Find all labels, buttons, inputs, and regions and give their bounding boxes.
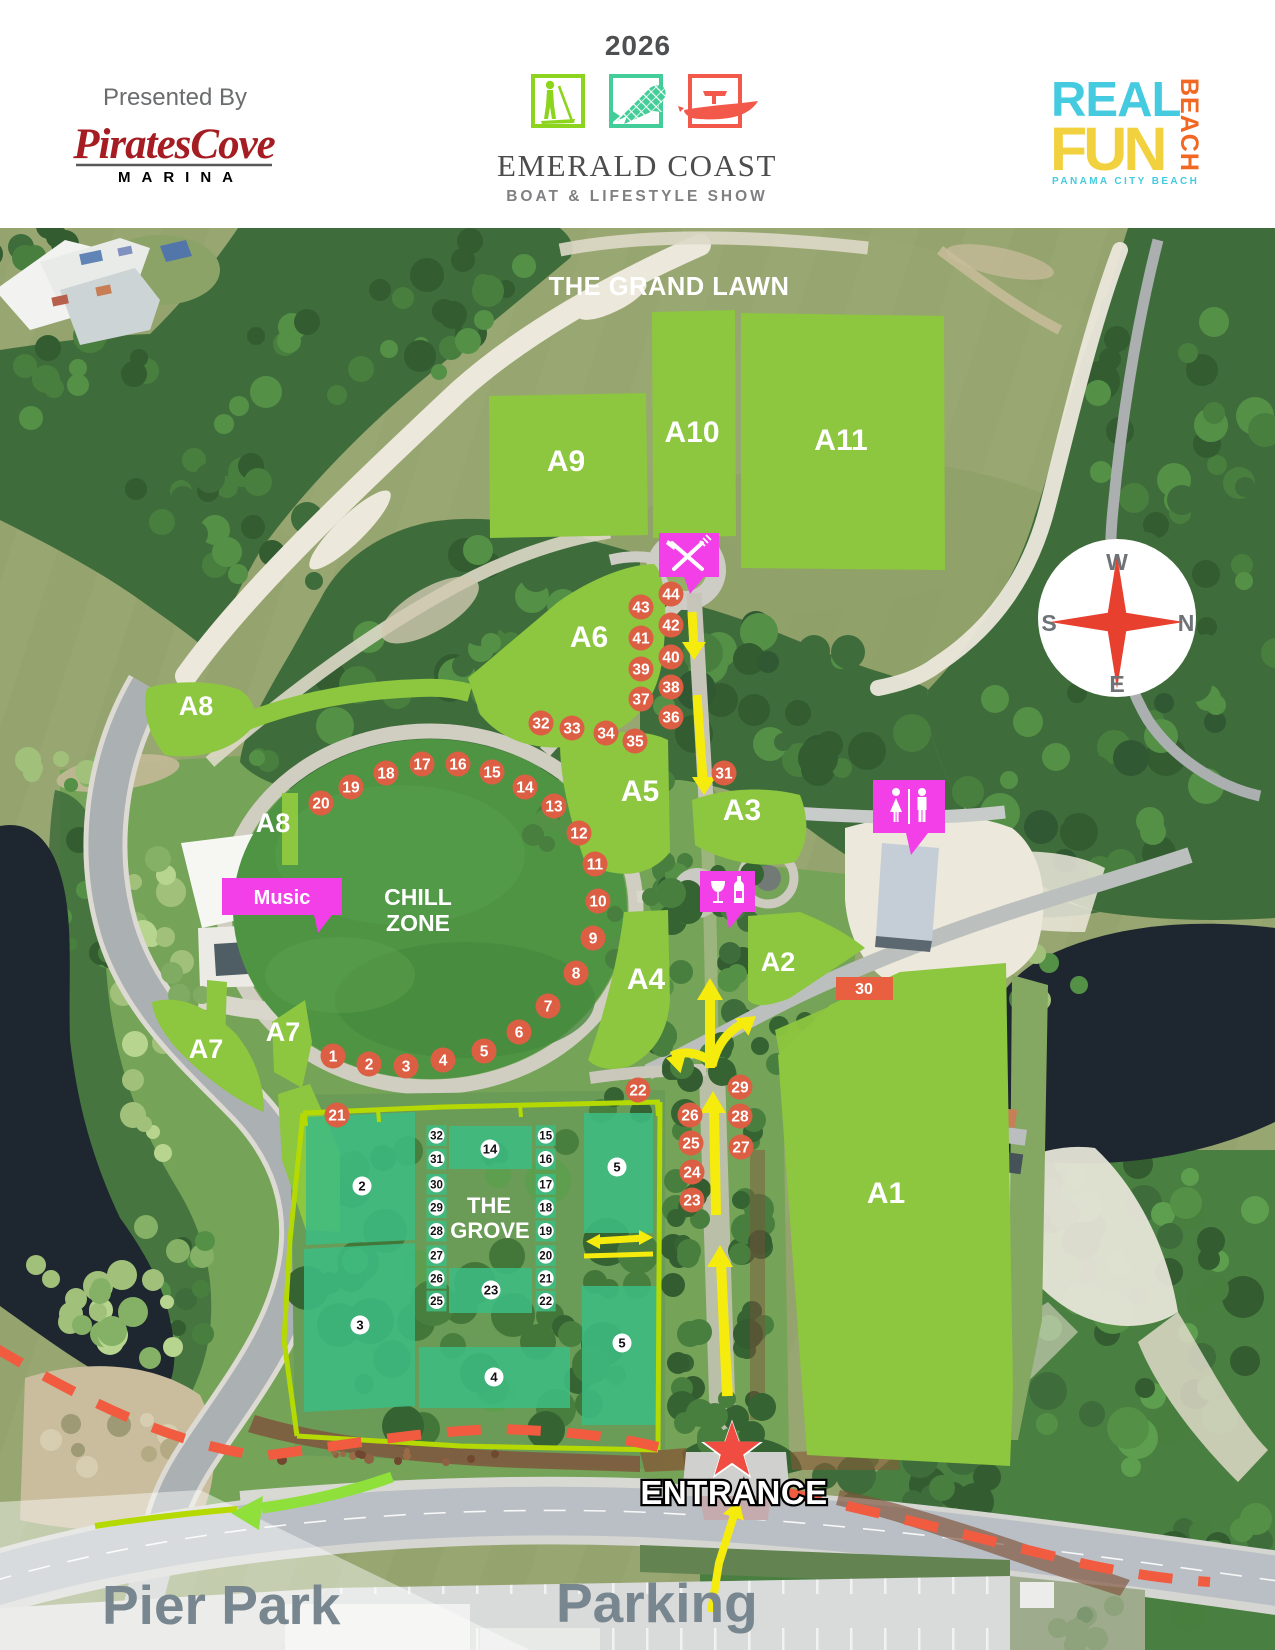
svg-text:26: 26 xyxy=(681,1108,699,1125)
svg-text:11: 11 xyxy=(587,857,604,874)
svg-text:14: 14 xyxy=(483,1142,498,1157)
svg-text:A2: A2 xyxy=(761,947,796,977)
svg-text:PANAMA CITY BEACH: PANAMA CITY BEACH xyxy=(1052,176,1199,187)
svg-text:20: 20 xyxy=(539,1251,552,1263)
svg-text:25: 25 xyxy=(430,1296,443,1308)
svg-text:19: 19 xyxy=(539,1226,552,1238)
svg-text:1: 1 xyxy=(329,1049,338,1066)
svg-text:PiratesCove: PiratesCove xyxy=(72,121,275,168)
svg-text:A9: A9 xyxy=(547,445,585,478)
svg-text:20: 20 xyxy=(312,796,329,813)
svg-text:THE GRAND LAWN: THE GRAND LAWN xyxy=(549,273,790,301)
svg-text:A1: A1 xyxy=(867,1177,905,1210)
svg-text:22: 22 xyxy=(629,1083,646,1100)
svg-text:A8: A8 xyxy=(179,691,214,721)
svg-text:BEACH: BEACH xyxy=(1175,78,1203,172)
svg-text:14: 14 xyxy=(516,780,534,797)
svg-text:FUN: FUN xyxy=(1050,115,1163,183)
svg-text:A11: A11 xyxy=(814,424,867,457)
svg-text:Music: Music xyxy=(254,887,311,909)
svg-text:5: 5 xyxy=(613,1160,620,1175)
svg-text:10: 10 xyxy=(589,894,606,911)
svg-text:4: 4 xyxy=(439,1053,448,1070)
svg-text:34: 34 xyxy=(597,726,615,743)
svg-text:8: 8 xyxy=(572,966,581,983)
svg-text:A8: A8 xyxy=(256,808,291,838)
svg-text:GROVE: GROVE xyxy=(450,1218,529,1243)
svg-text:W: W xyxy=(1106,549,1128,575)
svg-text:32: 32 xyxy=(430,1131,443,1143)
svg-text:18: 18 xyxy=(539,1203,552,1215)
svg-text:29: 29 xyxy=(731,1080,749,1097)
svg-text:S: S xyxy=(1041,610,1056,636)
svg-text:15: 15 xyxy=(483,765,501,782)
svg-text:A10: A10 xyxy=(664,416,719,449)
svg-text:23: 23 xyxy=(484,1283,498,1298)
svg-text:41: 41 xyxy=(632,631,650,648)
svg-text:38: 38 xyxy=(662,680,680,697)
svg-text:N: N xyxy=(1178,610,1195,636)
svg-text:43: 43 xyxy=(632,600,650,617)
svg-text:31: 31 xyxy=(430,1154,443,1166)
svg-text:24: 24 xyxy=(683,1165,701,1182)
svg-text:EMERALD COAST: EMERALD COAST xyxy=(497,148,777,183)
svg-text:40: 40 xyxy=(662,650,679,667)
svg-text:12: 12 xyxy=(570,826,587,843)
svg-text:30: 30 xyxy=(855,981,873,998)
svg-text:6: 6 xyxy=(515,1025,524,1042)
svg-text:A7: A7 xyxy=(189,1034,224,1064)
svg-text:A3: A3 xyxy=(723,794,761,827)
svg-text:21: 21 xyxy=(328,1108,346,1125)
svg-text:MARINA: MARINA xyxy=(118,169,244,186)
svg-text:A4: A4 xyxy=(627,963,666,996)
svg-text:30: 30 xyxy=(430,1179,443,1191)
svg-text:29: 29 xyxy=(430,1203,443,1215)
svg-text:ENTRANCE: ENTRANCE xyxy=(640,1474,827,1511)
svg-text:26: 26 xyxy=(430,1273,443,1285)
svg-text:2026: 2026 xyxy=(605,30,671,61)
svg-text:Pier Park: Pier Park xyxy=(102,1574,341,1636)
svg-text:35: 35 xyxy=(626,734,644,751)
svg-text:25: 25 xyxy=(682,1136,700,1153)
svg-text:A5: A5 xyxy=(621,775,659,808)
svg-text:2: 2 xyxy=(365,1057,374,1074)
svg-text:27: 27 xyxy=(732,1140,749,1157)
svg-text:4: 4 xyxy=(490,1370,498,1385)
svg-text:Presented By: Presented By xyxy=(103,84,247,111)
svg-text:5: 5 xyxy=(618,1336,625,1351)
svg-text:15: 15 xyxy=(539,1131,552,1143)
svg-text:16: 16 xyxy=(539,1154,552,1166)
svg-text:33: 33 xyxy=(563,721,581,738)
svg-text:28: 28 xyxy=(430,1226,443,1238)
svg-text:27: 27 xyxy=(430,1251,443,1263)
svg-text:3: 3 xyxy=(402,1059,411,1076)
svg-text:3: 3 xyxy=(356,1318,363,1333)
svg-text:28: 28 xyxy=(731,1109,749,1126)
svg-text:E: E xyxy=(1109,671,1124,697)
svg-text:39: 39 xyxy=(632,662,650,679)
svg-text:ZONE: ZONE xyxy=(386,910,450,936)
svg-text:31: 31 xyxy=(715,766,733,783)
svg-text:7: 7 xyxy=(544,999,553,1016)
svg-text:13: 13 xyxy=(545,799,563,816)
svg-text:37: 37 xyxy=(632,692,649,709)
svg-text:18: 18 xyxy=(377,766,395,783)
svg-text:42: 42 xyxy=(662,618,679,635)
svg-text:21: 21 xyxy=(539,1273,552,1285)
svg-text:A6: A6 xyxy=(570,621,608,654)
svg-text:2: 2 xyxy=(358,1179,365,1194)
svg-text:36: 36 xyxy=(662,710,680,727)
svg-text:17: 17 xyxy=(413,757,430,774)
svg-text:19: 19 xyxy=(342,780,360,797)
svg-text:A7: A7 xyxy=(266,1017,301,1047)
svg-text:17: 17 xyxy=(539,1179,552,1191)
svg-text:9: 9 xyxy=(589,931,598,948)
svg-text:23: 23 xyxy=(683,1193,701,1210)
svg-text:32: 32 xyxy=(532,716,549,733)
svg-text:BOAT & LIFESTYLE SHOW: BOAT & LIFESTYLE SHOW xyxy=(506,188,768,205)
svg-text:16: 16 xyxy=(449,757,467,774)
svg-text:CHILL: CHILL xyxy=(384,884,452,910)
svg-text:THE: THE xyxy=(467,1193,511,1218)
svg-text:5: 5 xyxy=(480,1044,489,1061)
svg-text:Parking: Parking xyxy=(556,1572,758,1634)
svg-text:44: 44 xyxy=(662,587,680,604)
svg-text:22: 22 xyxy=(539,1296,552,1308)
